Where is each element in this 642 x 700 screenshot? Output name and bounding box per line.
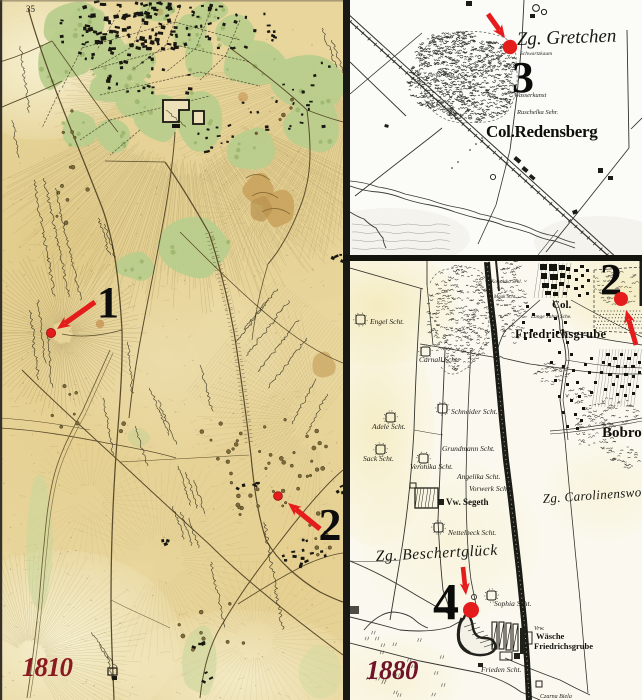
svg-text:Ruschelka Sehr.: Ruschelka Sehr. xyxy=(516,109,559,116)
svg-text:2: 2 xyxy=(319,499,342,550)
svg-text:35: 35 xyxy=(26,4,36,14)
svg-text:Kowalska Schl.: Kowalska Schl. xyxy=(490,280,522,285)
svg-text:Georg Felix: Georg Felix xyxy=(428,72,455,78)
svg-text:Frieden Scht.: Frieden Scht. xyxy=(480,665,522,674)
svg-text:Wäsche: Wäsche xyxy=(536,631,565,641)
svg-text:Bobrowni: Bobrowni xyxy=(602,425,642,441)
svg-text:1880: 1880 xyxy=(366,655,419,685)
svg-text:Schneider Scht.: Schneider Scht. xyxy=(451,407,498,416)
svg-text:Sophia Scht.: Sophia Scht. xyxy=(494,599,532,608)
svg-text:Angelika Scht.: Angelika Scht. xyxy=(456,472,500,481)
svg-text:Vw. Segeth: Vw. Segeth xyxy=(446,497,489,507)
svg-text:Maak Scht.: Maak Scht. xyxy=(493,295,517,300)
svg-text:Col.: Col. xyxy=(552,299,572,311)
svg-text:Col.Redensberg: Col.Redensberg xyxy=(486,122,598,141)
svg-text:Friedrichsgrube: Friedrichsgrube xyxy=(534,641,593,651)
svg-text:1: 1 xyxy=(97,278,119,327)
svg-text:Zg. Gretchen: Zg. Gretchen xyxy=(516,26,616,50)
svg-text:Carnall Scht.: Carnall Scht. xyxy=(419,355,459,364)
svg-text:1810: 1810 xyxy=(22,652,74,682)
svg-text:Nettelbeck Scht.: Nettelbeck Scht. xyxy=(447,528,496,537)
svg-text:Grundmann Scht.: Grundmann Scht. xyxy=(442,444,495,453)
svg-text:Vorwerk Scht.: Vorwerk Scht. xyxy=(469,484,511,493)
svg-text:4: 4 xyxy=(433,574,459,631)
svg-text:Czarna Biela: Czarna Biela xyxy=(540,694,572,700)
svg-text:Lange Jahre Sche.: Lange Jahre Sche. xyxy=(530,314,572,320)
svg-text:Engel Scht.: Engel Scht. xyxy=(369,317,404,326)
svg-text:Friedrichsgrube: Friedrichsgrube xyxy=(515,327,606,341)
svg-text:Sack Scht.: Sack Scht. xyxy=(363,454,394,463)
svg-text:Wasserkunst: Wasserkunst xyxy=(514,92,546,99)
svg-text:Adele Scht.: Adele Scht. xyxy=(371,422,406,431)
svg-text:Veronika Scht.: Veronika Scht. xyxy=(410,462,453,471)
